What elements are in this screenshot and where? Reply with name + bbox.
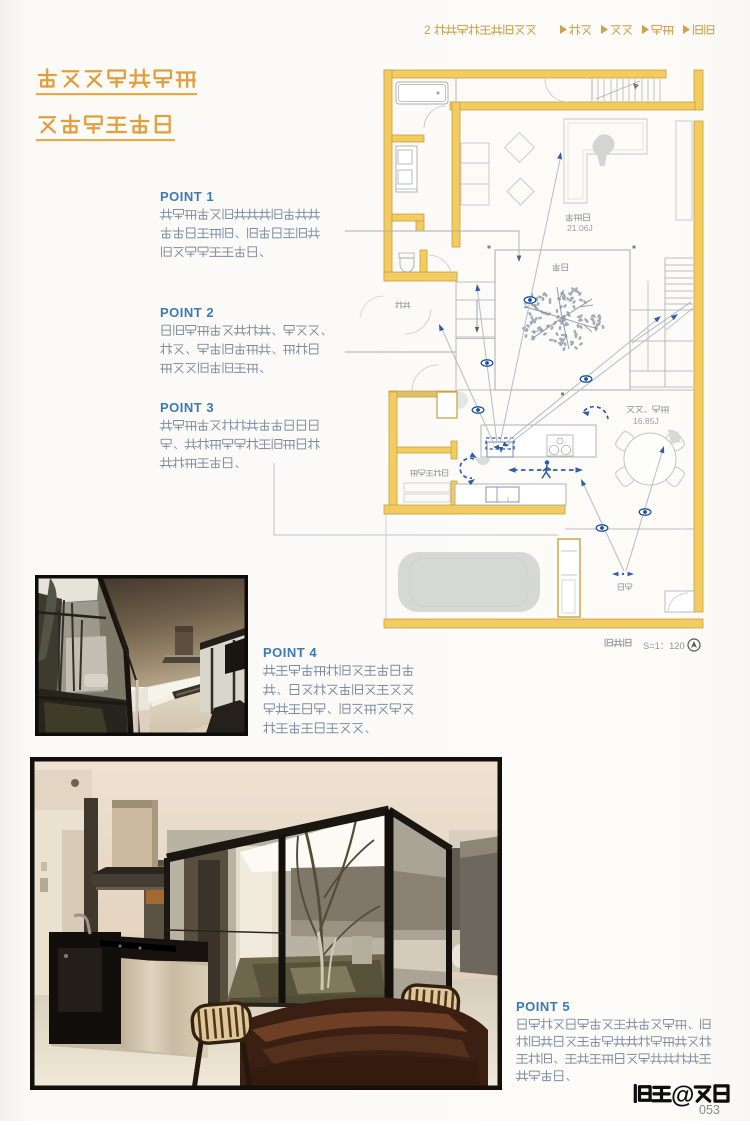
svg-text:2: 2 [424,23,431,37]
svg-text:21.06J: 21.06J [567,223,593,233]
svg-text:POINT 2: POINT 2 [160,305,214,320]
svg-text:POINT 5: POINT 5 [516,999,570,1014]
svg-text:16.85J: 16.85J [633,416,659,426]
svg-text:S=1：120: S=1：120 [643,641,685,651]
svg-text:@: @ [671,1082,694,1109]
svg-text:POINT 1: POINT 1 [160,189,214,204]
svg-text:POINT 4: POINT 4 [263,645,317,660]
svg-text:053: 053 [699,1103,720,1117]
svg-text:POINT 3: POINT 3 [160,400,214,415]
